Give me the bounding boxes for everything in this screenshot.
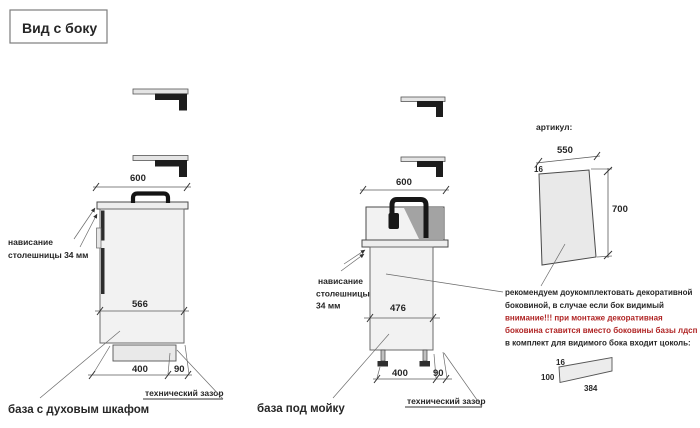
overhang-label: столешницы [316,289,370,299]
plinth [113,345,176,361]
cabinet-body [100,209,184,343]
wall-bracket-icon [133,89,188,111]
note-line: рекомендуем доукомплектовать декоративно… [505,288,693,297]
dim-top-label: 600 [130,173,146,184]
adjustable-leg [378,350,389,367]
adjustable-leg [420,350,431,367]
oven-cabinet-drawing: 600 566 400 90 технический зазор ба [8,89,224,416]
door-edge [101,211,105,241]
faucet-sprayer [389,213,400,229]
overhang-label: нависание [318,276,363,286]
side-panel-section: артикул: 550 16 700 рекомендуем доукомпл… [505,122,698,348]
plinth-panel-drawing: 16 100 384 [541,358,612,394]
dim-bottom-label: 400 [392,368,408,379]
arrow-line [80,214,97,247]
tech-gap-label: технический зазор [407,396,486,406]
page-title: Вид с боку [22,20,97,36]
dim-length-label: 384 [584,384,598,393]
drawing-canvas: Вид с боку 600 566 [0,0,700,428]
wall-bracket-icon [401,157,445,177]
dim-depth-label: 566 [132,299,148,310]
dim-thickness-label: 16 [556,358,565,367]
extension-line [93,346,110,374]
technical-drawing-page: Вид с боку 600 566 [0,0,700,428]
dim-thickness-label: 16 [534,165,543,174]
dim-height-label: 100 [541,373,555,382]
leader-line [40,331,120,398]
tech-gap-label: технический зазор [145,388,224,398]
note-line-warning: внимание!!! при монтаже декоративная [505,314,663,323]
dim-height-label: 700 [612,204,628,215]
countertop [362,240,448,247]
article-label: артикул: [536,122,572,132]
door-front-edge [97,228,102,248]
note-line: боковиной, в случае если бок видимый [505,301,664,310]
overhang-label: нависание [8,237,53,247]
dim-bottom-label: 400 [132,364,148,375]
dim-gap-label: 90 [174,364,185,375]
cabinet-name-label: база под мойку [257,403,345,415]
dim-width-label: 550 [557,145,573,156]
dim-line [536,156,600,163]
countertop [97,202,188,209]
panel-note-text: рекомендуем доукомплектовать декоративно… [505,288,698,348]
decorative-side-panel [539,170,596,265]
door-edge [101,248,105,294]
sink-cabinet-drawing: 600 476 400 90 [257,97,503,415]
plinth-strip [559,358,612,383]
overhang-label: столешницы 34 мм [8,250,88,260]
cabinet-name-label: база с духовым шкафом [8,404,149,416]
dim-gap-label: 90 [433,368,444,379]
extension-line [597,256,612,257]
overhang-label: 34 мм [316,301,340,311]
cabinet-body [370,247,433,350]
note-line: в комплект для видимого бока входит цоко… [505,339,691,348]
note-line-warning: боковина ставится вместо боковины базы л… [505,326,698,335]
arrow-line [344,250,365,264]
view-title-box: Вид с боку [10,10,107,43]
dim-top-label: 600 [396,177,412,188]
dim-depth-label: 476 [390,303,406,314]
arrow-line [341,254,364,271]
wall-bracket-icon [401,97,445,117]
